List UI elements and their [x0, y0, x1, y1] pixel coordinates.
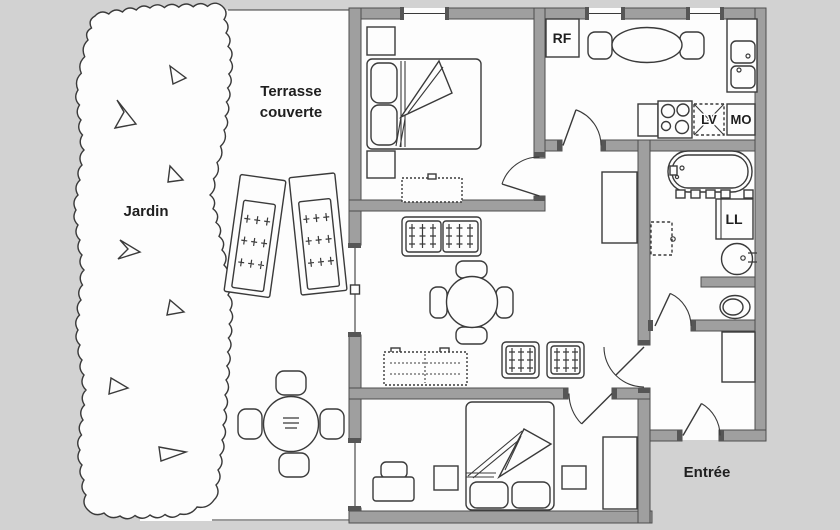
garden	[74, 3, 233, 519]
window-mid-post	[351, 285, 360, 294]
kitchen-counter	[638, 104, 658, 136]
terrace-label-line1: Terrasse	[260, 83, 321, 100]
double-bed	[367, 59, 481, 149]
nightstand	[367, 151, 395, 178]
pillow	[512, 482, 550, 508]
terrace-label-line2: couverte	[260, 104, 323, 121]
pillow	[470, 482, 508, 508]
patio-chair-bottom	[279, 453, 309, 477]
armchair	[547, 342, 584, 378]
microwave-label: MO	[731, 112, 752, 127]
hall-closet	[722, 332, 755, 382]
toilet	[720, 296, 750, 319]
stove	[658, 101, 692, 138]
washing-machine-label: LL	[725, 211, 743, 227]
sofa	[402, 217, 481, 256]
garden-border	[74, 3, 233, 519]
patio-chair-left	[238, 409, 262, 439]
nightstand	[434, 466, 458, 490]
entrance-hall	[722, 332, 755, 382]
patio-table	[264, 397, 319, 452]
dishwasher-label: LV	[701, 112, 717, 127]
kitchen-table	[612, 28, 682, 63]
dining-table	[447, 277, 498, 328]
patio-chair-right	[320, 409, 344, 439]
bench-knob	[428, 174, 436, 179]
bathroom-cabinet	[651, 222, 675, 255]
nightstand	[562, 466, 586, 489]
dining-chair	[456, 261, 487, 278]
bathtub	[668, 151, 752, 192]
tub-faucet	[670, 166, 677, 175]
patio-chair-top	[276, 371, 306, 395]
sideboard	[384, 348, 467, 385]
nightstand	[367, 27, 395, 55]
dining-chair	[456, 327, 487, 344]
entrance-label: Entrée	[684, 464, 731, 481]
double-bed	[466, 402, 554, 510]
floor-plan-svg: Jardin Terrasse couverte Entrée RF LV MO…	[0, 0, 840, 530]
garden-label: Jardin	[123, 203, 168, 220]
dining-chair	[496, 287, 513, 318]
tall-cupboard	[602, 172, 637, 243]
kitchen-sink	[727, 19, 757, 92]
armchair	[502, 342, 539, 378]
kitchen-chair-right	[680, 32, 704, 59]
floor-plan: Jardin Terrasse couverte Entrée RF LV MO…	[0, 0, 840, 530]
fridge-label: RF	[553, 30, 572, 46]
dining-chair	[430, 287, 447, 318]
bench	[402, 178, 462, 202]
pillow	[371, 63, 397, 103]
pillow	[371, 105, 397, 145]
wardrobe	[603, 437, 637, 509]
shower-screen	[701, 277, 755, 287]
kitchen-chair-left	[588, 32, 612, 59]
